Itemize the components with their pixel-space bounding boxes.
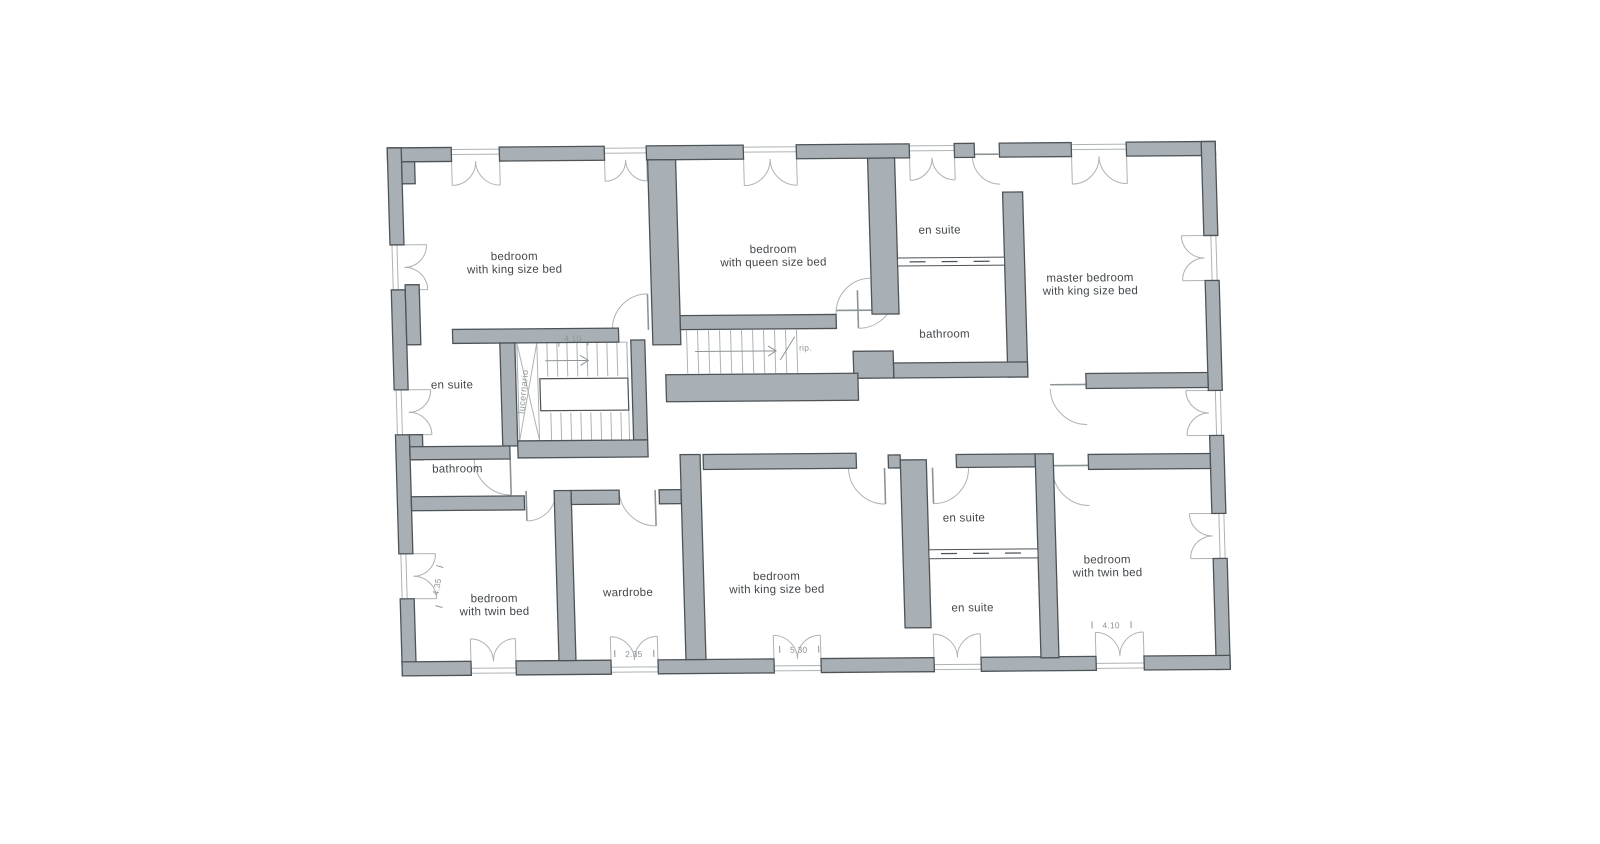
wall-segment [402,661,471,676]
stair-tread [796,330,797,373]
room-label-master-bedroom-2: with king size bed [1042,285,1139,298]
wall-segment [554,491,576,661]
window-arc [476,161,501,185]
window-symbol [392,245,428,290]
window-leaf [773,635,774,658]
floor-plan-page: bedroom with king size bed bedroom with … [0,0,1600,844]
window-frame [392,245,398,290]
window-arc [910,158,933,181]
wall-segment [499,146,604,161]
door-leaf [655,490,656,526]
stair-tread [621,412,622,440]
window-arc [605,160,627,181]
wall-segment [1088,453,1210,469]
window-leaf [933,634,934,657]
window-leaf [1072,157,1073,184]
window-leaf [797,159,798,185]
window-frame [743,147,796,152]
window-arc [404,245,427,268]
stair-tread [581,412,582,440]
window-frame [774,666,821,671]
window-leaf [820,635,821,658]
dimension-tick [435,606,442,608]
stair-tread [577,342,578,376]
door-swing [526,491,557,521]
wall-segment [646,145,743,160]
window-frame [451,149,499,154]
window-symbol [1095,632,1144,668]
wall-segment [703,453,856,469]
window-frame [1219,513,1225,558]
window-symbol [470,638,516,673]
door-leaf [884,468,885,504]
room-label-bedroom-king-top: bedroom [491,251,538,263]
window-frame [611,667,658,672]
window-leaf [1095,632,1096,656]
stair-tread [601,412,602,440]
door-swing [1052,465,1089,505]
window-frame [1096,663,1144,668]
window-symbol [604,148,647,181]
window-arc [1181,236,1204,259]
window-arc [932,157,955,180]
wall-segment [893,362,1027,378]
wall-segment [571,490,619,504]
window-leaf [515,638,516,660]
room-label-bedroom-queen: bedroom [749,244,796,256]
dimension-twin-right: 4.10 [1102,620,1120,630]
stair-break-line [780,337,796,360]
stair-tread [611,412,612,440]
stair-tread [561,413,562,441]
wall-segment [1035,454,1059,658]
window-leaf [610,637,611,660]
door-swing [972,154,1000,184]
wall-segment [516,660,611,675]
window-arc [408,390,431,413]
window-leaf [1127,156,1128,183]
stair-tread [591,412,592,440]
window-arc [413,554,436,577]
door-arc [1053,469,1090,505]
room-label-bedroom-king-bottom: bedroom [753,571,800,583]
stair-tread [551,413,552,441]
door-swing [611,294,648,330]
window-arc [452,161,477,185]
window-arc [1186,413,1209,436]
window-symbol [396,390,432,435]
wall-segment [956,454,1035,468]
staircase-main [517,342,630,441]
window-frame [604,148,646,153]
door-swing [619,490,656,526]
window-symbol [451,149,500,185]
window-arc [1182,258,1205,281]
wall-segment [500,343,518,446]
door-arc [932,467,969,503]
room-label-wardrobe: wardrobe [602,587,653,599]
room-label-bedroom-twin-right: bedroom [1083,554,1130,566]
dimension-king-bottom: 5.30 [790,645,808,655]
room-label-bedroom-twin-left-2: with twin bed [459,606,530,619]
staircase-secondary [686,330,797,374]
window-arc [1119,632,1144,656]
window-symbol [909,145,955,180]
stair-tread [627,342,628,376]
wall-segment [853,351,894,378]
stair-landing [540,378,629,411]
stair-tread [607,342,608,376]
wall-segment [680,455,706,660]
window-frame [471,668,516,673]
door-arc [611,294,648,330]
door-arc [973,157,1001,184]
wall-segment [452,328,618,343]
window-frame [1211,235,1217,280]
wall-segment [648,160,681,345]
room-label-bedroom-king-top-2: with king size bed [466,264,563,277]
window-frame [1071,144,1126,149]
door-arc [619,490,656,526]
door-swing [848,468,885,504]
wall-segment [900,460,931,628]
window-frame [1215,390,1221,435]
room-label-master-bedroom: master bedroom [1046,272,1134,285]
wall-segment [1201,141,1218,235]
room-label-ensuite-right-upper: en suite [943,512,986,524]
window-symbol [1189,513,1225,558]
wall-segment [680,314,836,329]
window-symbol [1181,235,1217,280]
window-arc [493,638,516,661]
window-frame [934,664,981,669]
stair-tread [571,413,572,441]
dimension-left-wall: 4.35 [430,577,443,596]
window-frame [909,145,954,150]
window-arc [744,159,771,186]
wall-segment [954,143,974,157]
window-symbol [933,634,981,670]
window-arc [770,159,797,186]
window-arc [1095,632,1120,656]
window-leaf [605,160,606,181]
window-symbol [1071,144,1127,184]
wall-segment [821,658,934,673]
dimension-wardrobe: 2.35 [625,649,643,659]
door-swing [932,467,969,503]
wall-segment [1086,373,1208,389]
wall-segment [659,490,681,504]
window-arc [1189,513,1212,536]
room-label-ensuite-right-lower: en suite [951,602,994,614]
door-leaf [647,294,648,330]
wall-segment [888,455,900,468]
window-symbol [743,147,797,186]
stair2-label: rip. [799,343,812,353]
floor-plan: bedroom with king size bed bedroom with … [381,135,1237,697]
door-arc [1050,388,1087,424]
window-frame [396,390,402,435]
window-arc [626,160,648,181]
wall-segment [1213,558,1230,669]
floor-plan-drawing: bedroom with king size bed bedroom with … [381,135,1237,697]
door-leaf [932,468,933,504]
door-leaf [510,459,511,495]
wall-segment [631,340,648,440]
door-arc [835,278,872,314]
wall-segment [410,446,510,460]
window-arc [470,639,493,662]
wall-segment [405,285,421,345]
window-arc [409,412,432,435]
wall-segment [1144,655,1230,670]
room-label-bedroom-queen-2: with queen size bed [719,257,827,270]
wall-segment [868,158,899,314]
wall-segment [1003,192,1028,377]
stair-tread [547,343,548,377]
door-arc [848,468,885,504]
door-leaf [857,290,858,328]
window-leaf [980,634,981,657]
room-label-ensuite-top: en suite [918,224,961,236]
window-leaf [1143,632,1144,656]
dimension-tick [436,566,443,568]
window-arc [1186,391,1209,414]
window-leaf [744,159,745,185]
stair-tread [567,343,568,377]
wall-segment [1210,435,1226,513]
door-leaf [526,491,527,521]
wall-segment [402,162,416,184]
room-label-bedroom-king-bottom-2: with king size bed [728,584,825,597]
window-leaf [452,161,453,185]
window-leaf [470,639,471,661]
stair-dimension-label: 4.10 [564,333,582,343]
room-label-bedroom-twin-left: bedroom [470,593,517,605]
stair-tread [617,342,618,376]
stair-tread [686,331,687,374]
window-leaf [910,158,911,180]
window-arc [957,634,981,658]
wall-segment [999,143,1071,158]
stair-tread [597,342,598,376]
wall-segment [411,496,524,511]
door-swing [1050,384,1087,424]
room-label-bedroom-twin-right-2: with twin bed [1072,567,1143,580]
window-leaf [500,161,501,185]
wall-segment [981,656,1096,671]
wall-segment [666,373,859,402]
window-arc [1072,156,1100,184]
door-swing [835,278,872,314]
wall-segment [518,440,648,458]
window-arc [1099,156,1127,184]
stair-tread [557,343,558,377]
window-arc [1190,536,1213,559]
window-arc [933,634,957,658]
window-leaf [657,636,658,659]
window-frame [401,554,407,599]
room-label-bathroom-left: bathroom [432,463,483,475]
door-arc [526,491,557,521]
wall-segment [796,144,909,159]
room-label-ensuite-left: en suite [431,379,474,391]
wall-segment [658,659,774,674]
window-leaf [955,157,956,179]
room-label-bathroom-top: bathroom [919,328,970,340]
window-symbol [1186,390,1222,435]
